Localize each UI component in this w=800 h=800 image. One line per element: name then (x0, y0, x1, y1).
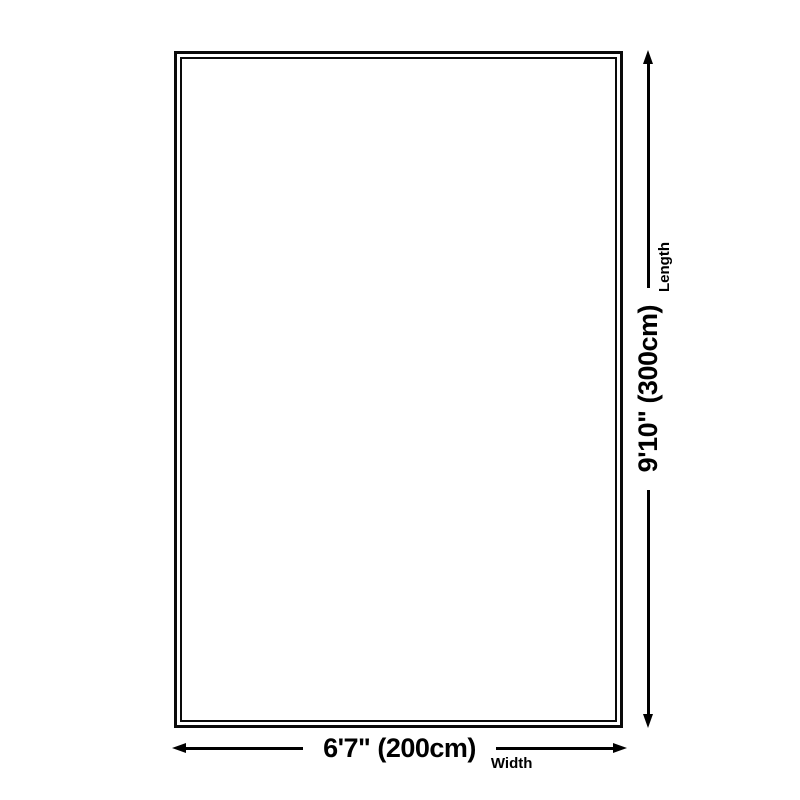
length-dimension-line-top: Length (647, 64, 650, 288)
length-value: 9'10" (300cm) (633, 288, 664, 489)
length-caption: Length (656, 242, 673, 292)
arrow-down-icon (643, 714, 653, 728)
length-dimension: Length 9'10" (300cm) (640, 50, 656, 728)
length-dimension-line-bottom (647, 490, 650, 714)
width-caption: Width (491, 755, 533, 772)
rug-size-diagram: 6'7" (200cm) Width Length 9'10" (300cm) (0, 0, 800, 800)
arrow-left-icon (172, 743, 186, 753)
width-dimension-line-right: Width (496, 747, 613, 750)
arrow-right-icon (613, 743, 627, 753)
width-dimension: 6'7" (200cm) Width (172, 740, 627, 756)
arrow-up-icon (643, 50, 653, 64)
width-value: 6'7" (200cm) (303, 733, 496, 764)
width-dimension-line-left (186, 747, 303, 750)
rug-outline (174, 51, 623, 728)
rug-outline-inner-border (180, 57, 617, 722)
